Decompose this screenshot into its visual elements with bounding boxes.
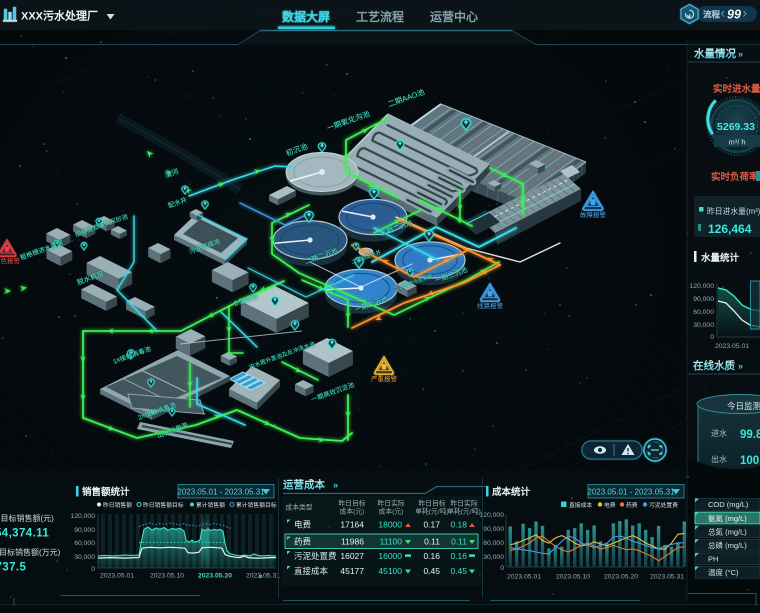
svg-text:污泥处置费: 污泥处置费 (294, 551, 337, 561)
svg-text:严重报警: 严重报警 (371, 374, 398, 383)
svg-text:99.8: 99.8 (740, 429, 760, 441)
svg-text:0.45: 0.45 (423, 566, 440, 576)
svg-text:总氮 (mg/L): 总氮 (mg/L) (708, 526, 747, 536)
svg-text:红色报警: 红色报警 (0, 256, 21, 265)
svg-text:0.17: 0.17 (423, 520, 440, 530)
svg-text:2023.05.20: 2023.05.20 (604, 574, 638, 581)
svg-text:运营成本: 运营成本 (283, 478, 325, 491)
svg-text:2023.05.01: 2023.05.01 (715, 343, 749, 350)
svg-text:2023.05.20: 2023.05.20 (198, 573, 232, 580)
svg-text:在线水质: 在线水质 (693, 359, 735, 372)
svg-text:120,000: 120,000 (70, 513, 95, 520)
svg-text:16027: 16027 (340, 551, 364, 561)
svg-text:0: 0 (710, 334, 714, 341)
svg-text:药费: 药费 (626, 501, 638, 509)
svg-text:进水: 进水 (711, 428, 727, 438)
svg-text:0: 0 (91, 566, 95, 573)
svg-text:氨氮 (mg/L): 氨氮 (mg/L) (708, 513, 747, 523)
svg-text:0.45: 0.45 (450, 566, 467, 576)
svg-text:昨日销售额: 昨日销售额 (103, 501, 132, 509)
svg-text:30,000: 30,000 (693, 322, 714, 329)
svg-text:2023.05.31: 2023.05.31 (650, 574, 684, 581)
svg-text:单耗(元/吨): 单耗(元/吨) (447, 507, 481, 516)
svg-text:昨日进水量(m³): 昨日进水量(m³) (707, 206, 760, 216)
svg-text:昨日目标销售额(元): 昨日目标销售额(元) (0, 513, 54, 523)
svg-text:90,000: 90,000 (483, 526, 504, 533)
svg-text:30,000: 30,000 (483, 554, 504, 561)
svg-text:120,000: 120,000 (689, 283, 714, 290)
svg-text:99: 99 (727, 8, 741, 22)
svg-text:成本(元): 成本(元) (340, 507, 365, 516)
svg-text:60,000: 60,000 (483, 540, 504, 547)
svg-text:m³/ h: m³/ h (728, 138, 745, 147)
svg-text:45100: 45100 (378, 566, 402, 576)
svg-text:流程: 流程 (703, 9, 721, 19)
svg-text:昨日实际: 昨日实际 (450, 499, 477, 508)
svg-text:PH: PH (708, 555, 718, 564)
svg-text:单耗(元/吨): 单耗(元/吨) (415, 507, 449, 516)
svg-text:累计销售额目标: 累计销售额目标 (236, 501, 277, 509)
svg-text:XXX污水处理厂: XXX污水处理厂 (21, 9, 98, 23)
svg-text:737.5: 737.5 (0, 562, 26, 574)
svg-text:成本(元): 成本(元) (379, 507, 404, 516)
svg-text:COD (mg/L): COD (mg/L) (708, 500, 749, 509)
svg-text:90,000: 90,000 (693, 296, 714, 303)
svg-text:5269.33: 5269.33 (717, 121, 755, 133)
svg-text:销售额统计: 销售额统计 (82, 486, 130, 498)
svg-text:线路报警: 线路报警 (477, 301, 504, 310)
svg-text:昨日目标: 昨日目标 (338, 499, 365, 508)
svg-text:2023.05.01 - 2023.05.31: 2023.05.01 - 2023.05.31 (177, 488, 265, 497)
svg-text:总磷 (mg/L): 总磷 (mg/L) (708, 540, 747, 550)
svg-text:126,464: 126,464 (708, 222, 752, 236)
svg-text:直接成本: 直接成本 (294, 566, 329, 576)
svg-text:实时进水量: 实时进水量 (713, 83, 760, 95)
svg-text:温度 (°C): 温度 (°C) (708, 567, 739, 577)
svg-text:2023.05.01: 2023.05.01 (100, 573, 134, 580)
svg-text:0: 0 (500, 565, 504, 572)
svg-text:2023.05.10: 2023.05.10 (150, 573, 184, 580)
svg-text:电费: 电费 (604, 501, 616, 509)
svg-text:120,000: 120,000 (479, 512, 504, 519)
svg-text:2023.05.31: 2023.05.31 (246, 573, 280, 580)
svg-text:17164: 17164 (340, 520, 364, 530)
svg-text:2023.05.10: 2023.05.10 (556, 574, 590, 581)
svg-text:16000: 16000 (378, 551, 402, 561)
svg-text:0.16: 0.16 (423, 551, 440, 561)
svg-text:累计目标销售额(万元): 累计目标销售额(万元) (0, 547, 61, 557)
svg-text:60,000: 60,000 (693, 309, 714, 316)
svg-text:数据大屏: 数据大屏 (282, 9, 330, 24)
svg-text:30,000: 30,000 (74, 554, 95, 561)
svg-text:成本类型: 成本类型 (285, 503, 312, 512)
svg-text:水量统计: 水量统计 (701, 252, 740, 264)
svg-text:直接成本: 直接成本 (569, 501, 592, 509)
svg-text:»: » (738, 49, 743, 59)
svg-text:»: » (333, 480, 338, 490)
svg-text:运营中心: 运营中心 (430, 9, 478, 24)
svg-text:实时负荷率: 实时负荷率 (711, 171, 759, 183)
svg-text:0.11: 0.11 (451, 537, 467, 547)
svg-text:成本统计: 成本统计 (492, 486, 531, 498)
svg-text:18000: 18000 (378, 520, 402, 530)
svg-text:昨日实际: 昨日实际 (377, 499, 404, 508)
svg-text:2023.05.01: 2023.05.01 (507, 574, 541, 581)
svg-text:11100: 11100 (380, 537, 403, 547)
svg-text:0.16: 0.16 (450, 551, 467, 561)
svg-text:90,000: 90,000 (74, 527, 95, 534)
svg-text:45177: 45177 (340, 566, 364, 576)
svg-text:0.18: 0.18 (450, 520, 467, 530)
svg-text:污泥处置费: 污泥处置费 (649, 501, 678, 509)
svg-text:故障报警: 故障报警 (580, 210, 607, 219)
svg-text:100.: 100. (740, 455, 760, 467)
svg-text:水量情况: 水量情况 (693, 47, 736, 60)
svg-text:昨日销售额目标: 昨日销售额目标 (143, 501, 184, 509)
svg-text:11986: 11986 (341, 537, 364, 547)
svg-text:»: » (738, 361, 743, 371)
svg-text:2023.05.01 - 2023.05.31: 2023.05.01 - 2023.05.31 (587, 488, 675, 497)
svg-text:今日监测: 今日监测 (727, 401, 760, 411)
svg-text:出水: 出水 (711, 454, 727, 464)
svg-text:昨日目标: 昨日目标 (418, 499, 445, 508)
svg-text:电费: 电费 (294, 520, 312, 530)
svg-text:60,000: 60,000 (74, 540, 95, 547)
svg-text:累计销售额: 累计销售额 (196, 501, 225, 509)
svg-text:54,374.11: 54,374.11 (0, 528, 49, 540)
svg-text:药费: 药费 (294, 537, 312, 547)
svg-text:0.11: 0.11 (424, 537, 440, 547)
svg-text:工艺流程: 工艺流程 (356, 9, 404, 24)
